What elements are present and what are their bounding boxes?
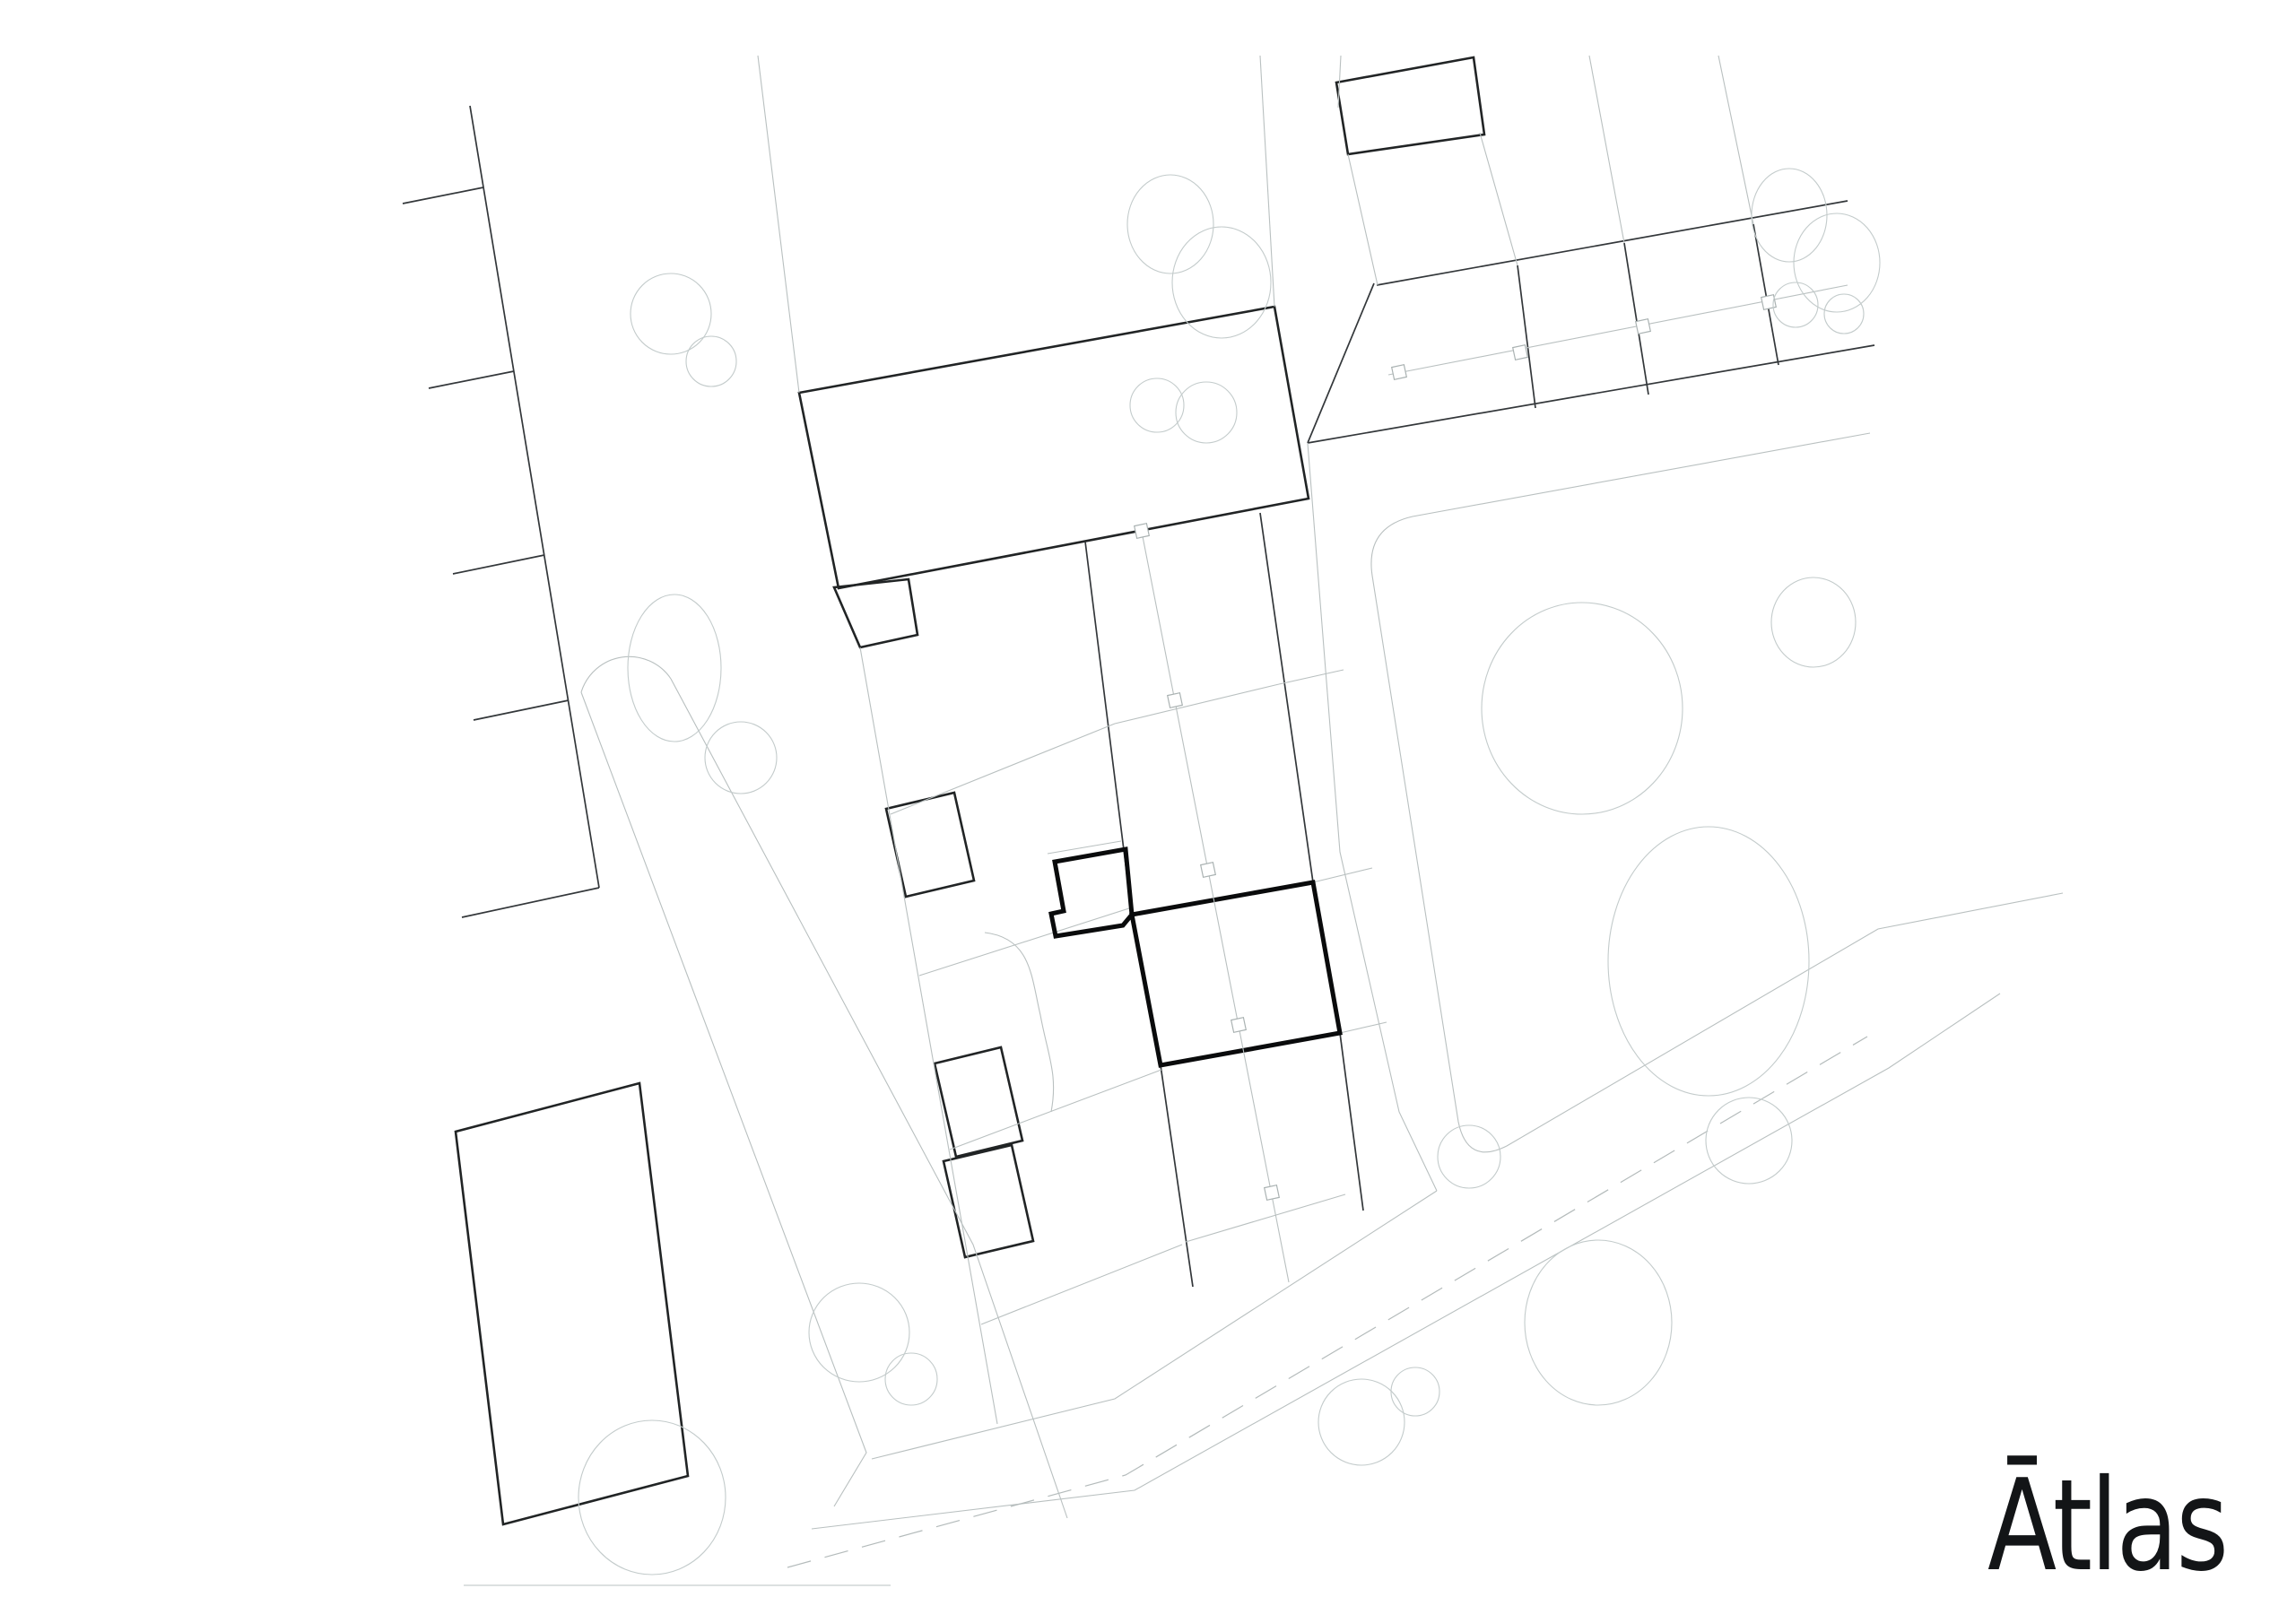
garden-shed-2 (935, 1047, 1022, 1157)
east-parcel-line-2-top (1589, 56, 1624, 243)
tree-23 (578, 1420, 726, 1575)
tree-1 (1127, 175, 1213, 273)
tree-4 (1176, 382, 1237, 443)
east-parcel-line-1-low (1518, 265, 1535, 408)
lane-rounded-end (581, 656, 671, 692)
row-house-tick-3 (453, 555, 544, 574)
garden-shed-1 (886, 793, 974, 897)
north-strip-line-1 (1260, 56, 1274, 307)
tree-15 (1608, 827, 1809, 1096)
tree-14 (1771, 577, 1856, 667)
main-building-annex (834, 579, 918, 647)
road-diag-upper-edge (872, 1191, 1437, 1459)
highlighted-unit-outline (1051, 849, 1340, 1065)
utility-box-c1 (1135, 524, 1150, 539)
tree-11 (1773, 282, 1818, 327)
tree-17 (1525, 1240, 1672, 1405)
brand-wordmark: Ātlas (1987, 1453, 2227, 1600)
northeast-building (1336, 57, 1484, 154)
row-house-tick-2 (429, 371, 514, 388)
tree-22 (885, 1353, 937, 1405)
utility-box-c3 (1201, 863, 1216, 878)
green-area-boundary (1371, 433, 2063, 1152)
row-house-strip-edge (470, 106, 599, 888)
brand-logo: Ātlas (1987, 1463, 2227, 1590)
east-parcel-line-2-low (1624, 243, 1648, 395)
utility-line-central (1141, 527, 1289, 1282)
parcel-column-right-upper (1260, 513, 1313, 882)
north-strip-line-3 (1348, 154, 1378, 285)
site-plan-drawing (0, 0, 2296, 1623)
plot-division-1 (891, 724, 1115, 814)
north-strip-line-4 (758, 56, 799, 393)
plot-division-3 (950, 1070, 1161, 1150)
plot-division-2 (919, 907, 1132, 976)
tree-18 (1318, 1379, 1405, 1465)
tree-13 (1482, 603, 1683, 814)
parcel-column-left-lower (1161, 1065, 1193, 1287)
utility-box-c2 (1168, 693, 1183, 708)
tree-16 (1706, 1098, 1792, 1184)
east-parcel-line-1-top (1480, 133, 1518, 265)
east-parcel-line-3-low (1753, 224, 1779, 365)
tree-21 (809, 1283, 909, 1382)
tree-5 (631, 273, 711, 354)
block-left-boundary (860, 647, 997, 1424)
row-house-tick-4 (474, 700, 569, 720)
tree-8 (705, 722, 777, 794)
southwest-building (456, 1083, 688, 1524)
column-division-4 (1186, 1194, 1345, 1242)
east-grid-corner (1308, 283, 1374, 443)
column-division-1 (1115, 684, 1279, 724)
utility-box-e3 (1636, 319, 1651, 334)
utility-box-e4 (1761, 295, 1777, 310)
tree-3 (1130, 378, 1184, 432)
row-house-strip-end (462, 888, 599, 917)
east-parcel-line-3-top (1718, 56, 1753, 224)
tree-7 (628, 595, 721, 742)
road-diag-centerline (787, 1037, 1867, 1567)
east-division-1 (1279, 670, 1344, 684)
tree-10 (1794, 213, 1880, 312)
east-grid-line-b (1308, 345, 1874, 443)
main-building (799, 307, 1309, 588)
plot-division-4 (981, 1245, 1182, 1324)
row-house-tick-1 (403, 187, 483, 204)
tree-20 (1438, 1125, 1500, 1188)
tree-12 (1824, 294, 1864, 334)
tree-9 (1752, 169, 1827, 262)
tree-19 (1391, 1367, 1439, 1416)
garden-shed-3 (944, 1145, 1033, 1257)
parcel-column-right-lower (1340, 1033, 1363, 1211)
utility-box-e2 (1513, 345, 1528, 360)
garden-path-curve (985, 933, 1054, 1112)
utility-box-c4 (1231, 1018, 1247, 1033)
utility-box-e1 (1392, 365, 1407, 380)
road-diag-lower-edge (812, 994, 2000, 1529)
east-division-2 (1313, 868, 1372, 882)
tree-6 (686, 336, 736, 386)
east-grid-line-a (1377, 201, 1848, 285)
utility-box-c5 (1265, 1185, 1280, 1201)
lane-east-edge (671, 679, 1067, 1518)
site-plan-page: Ātlas (0, 0, 2296, 1623)
lane-west-edge (581, 692, 866, 1506)
